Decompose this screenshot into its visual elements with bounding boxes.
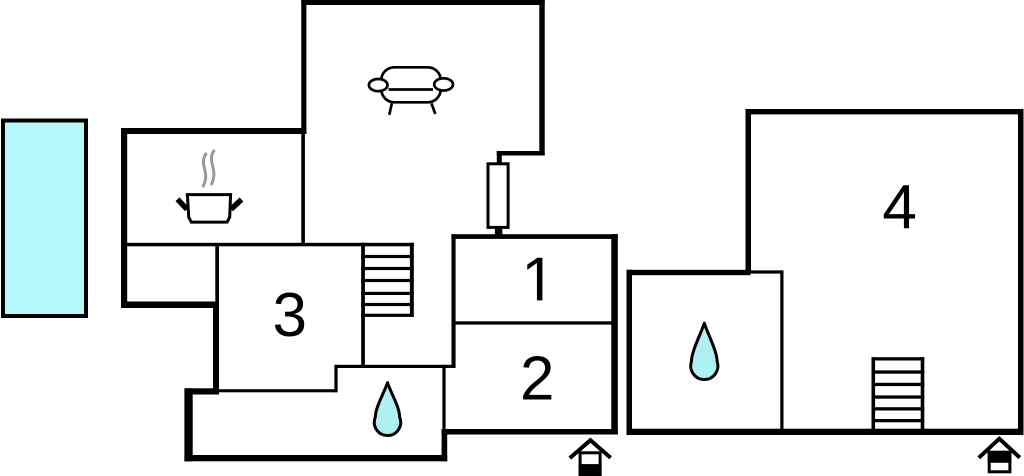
svg-text:2: 2 (520, 345, 554, 414)
svg-text:4: 4 (882, 173, 916, 242)
svg-text:3: 3 (272, 281, 306, 350)
